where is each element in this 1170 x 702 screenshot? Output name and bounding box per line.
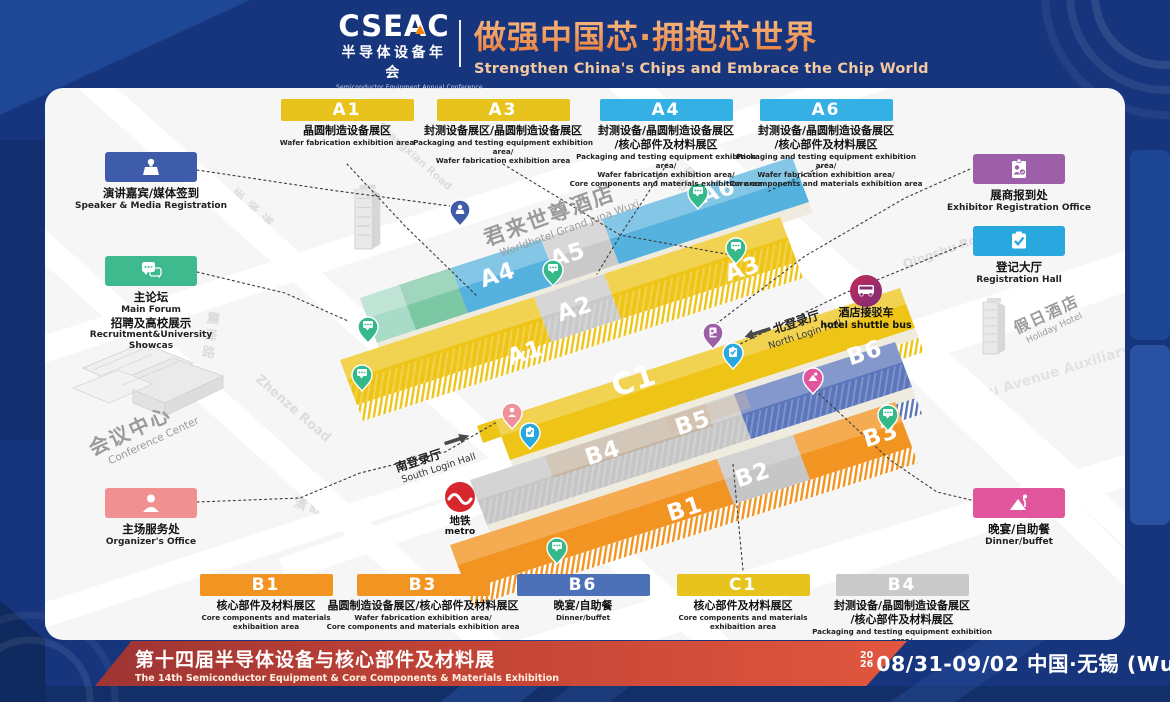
badge-a1-code: A1 (281, 99, 414, 121)
badge-a6-cn: /核心部件及材料展区 (726, 138, 926, 152)
badge-a6-cn: 封测设备/晶圆制造设备展区 (726, 124, 926, 138)
year-bottom: 26 (860, 661, 873, 670)
badge-b4: B4 封测设备/晶圆制造设备展区 /核心部件及材料展区 Packaging an… (802, 574, 1002, 640)
organizer-office-cn: 主场服务处 (71, 523, 231, 537)
badge-a4-code: A4 (600, 99, 733, 121)
legend-registration-hall: 登记大厅 Registration Hall (939, 226, 1099, 286)
clipboard-check-icon (1001, 230, 1037, 252)
speaker-media-box (105, 152, 197, 182)
logo-english: Semiconductor Equipment Annual Conferenc… (336, 84, 452, 91)
badge-b3-en: Core components and materials exhibition… (323, 622, 523, 631)
badge-b4-code: B4 (836, 574, 969, 596)
exhibitor-pin-icon (703, 323, 723, 349)
exhibitor-registration-en: Exhibitor Registration Office (939, 203, 1099, 214)
speaker-media-en: Speaker & Media Registration (71, 201, 231, 212)
legend-speaker-media: 演讲嘉宾/媒体签到 Speaker & Media Registration (71, 152, 231, 212)
exhibition-title-cn: 第十四届半导体设备与核心部件及材料展 (135, 645, 907, 672)
badge-a6-code: A6 (760, 99, 893, 121)
slogan: 做强中国芯·拥抱芯世界 Strengthen China's Chips and… (474, 12, 929, 77)
slogan-chinese: 做强中国芯·拥抱芯世界 (474, 12, 929, 58)
badge-a3-code: A3 (437, 99, 570, 121)
shuttle-en: hotel shuttle bus (820, 320, 912, 331)
logo-text: CSEAC (338, 9, 449, 43)
person-icon (133, 492, 169, 514)
badge-b3-code: B3 (357, 574, 490, 596)
conference-center-building (73, 343, 223, 416)
event-date-text: 08/31-09/02 中国·无锡 (Wuxi,China) (876, 647, 1170, 677)
header-divider (459, 20, 461, 67)
speaker-icon (133, 156, 169, 178)
main-forum-cn: 主论坛 (71, 291, 231, 305)
cseac-logo: CSEAC 半导体设备年会 Semiconductor Equipment An… (336, 11, 452, 91)
dinner-buffet-en: Dinner/buffet (939, 537, 1099, 548)
map-panel: 尚贤道 Shangxian Road 震泽路 Zhenze Road 清舒道 和… (45, 88, 1125, 640)
recruitment-en: Recruitment&University Showcas (71, 330, 231, 352)
exhibitor-registration-box (973, 154, 1065, 184)
organizer-office-box (105, 488, 197, 518)
speaker-media-cn: 演讲嘉宾/媒体签到 (71, 187, 231, 201)
badge-a6-en: Core components and materials exhibition… (726, 179, 926, 188)
footer-ribbon: 第十四届半导体设备与核心部件及材料展 The 14th Semiconducto… (95, 641, 907, 686)
badge-b4-cn: /核心部件及材料展区 (802, 613, 1002, 627)
badge-b1-code: B1 (200, 574, 333, 596)
event-year: 20 26 (860, 652, 873, 669)
worldhotel-tower-icon (355, 185, 380, 249)
badge-b4-cn: 封测设备/晶圆制造设备展区 (802, 599, 1002, 613)
logo-triangle-icon (415, 25, 425, 34)
badge-b6-code: B6 (517, 574, 650, 596)
logo-wordmark: CSEAC (336, 11, 452, 41)
id-badge-icon (1001, 158, 1037, 180)
dinner-icon (1001, 492, 1037, 514)
badge-c1-code: C1 (677, 574, 810, 596)
registration-hall-en: Registration Hall (939, 275, 1099, 286)
metro-en: metro (445, 527, 475, 537)
poster: CSEAC 半导体设备年会 Semiconductor Equipment An… (0, 0, 1170, 702)
organizer-office-en: Organizer's Office (71, 537, 231, 548)
exhibitor-registration-cn: 展商报到处 (939, 189, 1099, 203)
legend-organizer-office: 主场服务处 Organizer's Office (71, 488, 231, 548)
legend-exhibitor-registration: 展商报到处 Exhibitor Registration Office (939, 154, 1099, 214)
slogan-english: Strengthen China's Chips and Embrace the… (474, 61, 929, 77)
badge-b4-en: Packaging and testing equipment exhibiti… (802, 627, 1002, 641)
badge-a6-en: Packaging and testing equipment exhibiti… (726, 152, 926, 170)
dinner-buffet-box (973, 488, 1065, 518)
registration-hall-cn: 登记大厅 (939, 261, 1099, 275)
badge-a6: A6 封测设备/晶圆制造设备展区 /核心部件及材料展区 Packaging an… (726, 99, 926, 188)
dinner-buffet-cn: 晚宴/自助餐 (939, 523, 1099, 537)
event-date: 20 26 08/31-09/02 中国·无锡 (Wuxi,China) (860, 647, 1170, 677)
main-forum-en: Main Forum (71, 305, 231, 316)
legend-main-forum: 主论坛 Main Forum 招聘及高校展示 Recruitment&Unive… (71, 256, 231, 352)
metro-cn: 地铁 (450, 514, 471, 527)
forum-chat-icon (133, 260, 169, 282)
main-forum-box (105, 256, 197, 286)
exhibition-title-en: The 14th Semiconductor Equipment & Core … (135, 673, 907, 684)
badge-a6-en: Wafer fabrication exhibition area/ (726, 170, 926, 179)
logo-chinese: 半导体设备年会 (336, 42, 452, 82)
legend-dinner-buffet: 晚宴/自助餐 Dinner/buffet (939, 488, 1099, 548)
registration-hall-box (973, 226, 1065, 256)
recruitment-cn: 招聘及高校展示 (71, 317, 231, 331)
shuttle-cn: 酒店接驳车 (839, 305, 894, 319)
holiday-hotel-tower-icon (983, 298, 1005, 354)
